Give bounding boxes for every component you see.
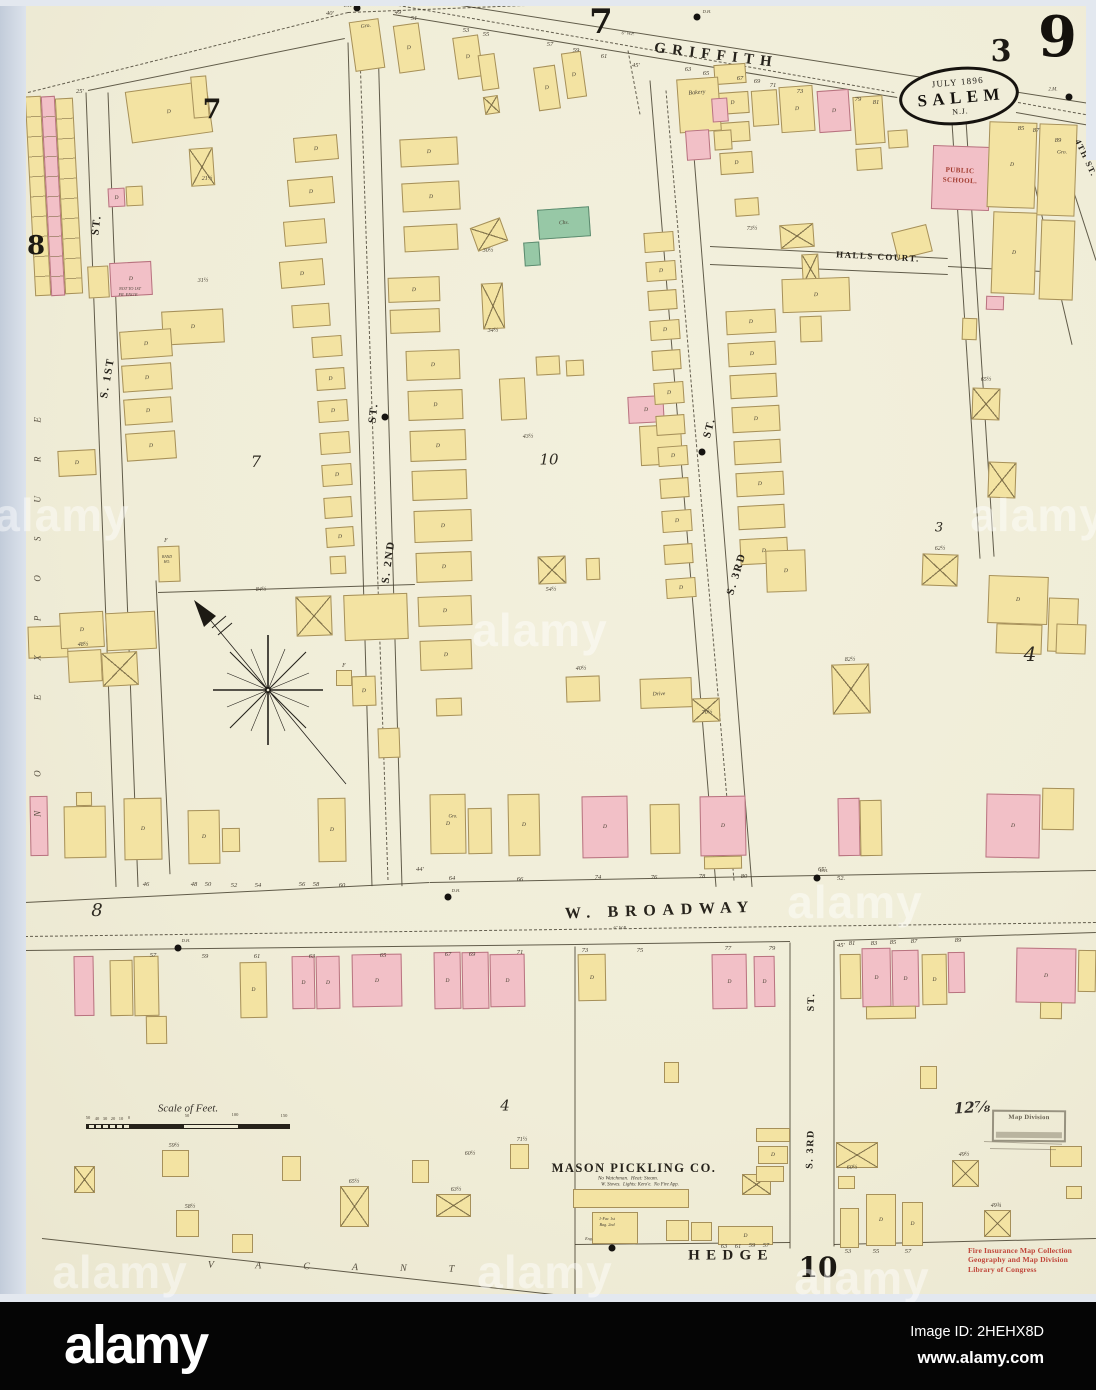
building-label: D <box>409 390 463 420</box>
stamp-sketch-line <box>990 1148 1056 1150</box>
building-footprint <box>921 553 958 586</box>
building-footprint <box>481 282 505 329</box>
scan-margin-right <box>1086 0 1096 160</box>
building-label: D <box>1017 948 1076 1002</box>
map-line <box>834 941 835 1247</box>
building-footprint <box>962 318 978 341</box>
map-note: 6" W.P. <box>613 926 626 931</box>
building-footprint <box>64 806 107 859</box>
house-number: 69 <box>469 952 476 959</box>
building-footprint: D <box>645 260 676 282</box>
building-footprint: D <box>987 121 1038 209</box>
house-number: D.H. <box>703 10 712 15</box>
house-number: 77 <box>725 946 732 953</box>
building-footprint: D <box>712 954 748 1010</box>
building-label: D <box>317 957 340 1008</box>
building-footprint: D <box>754 956 776 1007</box>
building-footprint: D <box>725 309 776 336</box>
building-label: D <box>124 397 172 424</box>
map-line <box>628 50 641 114</box>
block-number: 4 <box>500 1099 510 1114</box>
loc-credit-line: Library of Congress <box>968 1265 1094 1274</box>
building-label: D <box>326 527 353 547</box>
house-number: 71 <box>770 83 777 90</box>
building-footprint <box>499 377 527 420</box>
building-label: D <box>394 24 424 73</box>
building-footprint <box>282 1156 301 1181</box>
building-footprint: D <box>902 1202 923 1246</box>
building-footprint <box>729 373 777 399</box>
building-footprint <box>510 1144 529 1169</box>
building-footprint: D <box>279 258 325 289</box>
building-footprint <box>639 677 692 709</box>
building-label: D <box>759 1147 787 1163</box>
building-footprint <box>222 828 240 852</box>
building-footprint <box>283 218 327 247</box>
building-footprint: D <box>419 639 472 671</box>
house-number: 20 <box>111 1117 116 1122</box>
map-note: NOT TO 1ST <box>119 287 141 291</box>
building-label: D <box>414 510 471 542</box>
building-footprint <box>655 414 685 436</box>
alamy-watermark: alamy <box>787 875 922 929</box>
house-number: 59 <box>573 48 580 55</box>
building-label: D <box>903 1203 922 1245</box>
building-footprint <box>483 95 500 115</box>
building-footprint: D <box>561 51 587 99</box>
house-number: 10 <box>119 1117 124 1122</box>
map-note: Bag. 2nd <box>599 1223 614 1227</box>
building-footprint <box>737 504 785 530</box>
building-footprint <box>1039 219 1076 300</box>
building-label: D <box>654 382 683 404</box>
building-label: D <box>294 135 338 162</box>
utility-marker-dot <box>699 449 706 456</box>
house-number: 52 <box>231 883 238 890</box>
map-note: HO. <box>164 561 170 565</box>
building-footprint: D <box>817 89 852 133</box>
scan-margin-left <box>0 0 26 1302</box>
house-number: 58 <box>313 882 320 889</box>
house-number: 55 <box>873 1249 880 1256</box>
house-number: 65' <box>818 867 826 874</box>
building-footprint: D <box>401 181 460 213</box>
building-footprint: D <box>758 1146 788 1164</box>
building-footprint: D <box>731 405 780 433</box>
building-footprint: D <box>123 396 173 425</box>
utility-marker-dot <box>382 414 389 421</box>
building-footprint: D <box>119 328 173 360</box>
building-label: D <box>109 189 125 207</box>
building-label: D <box>700 797 745 856</box>
building-label: D <box>421 640 472 670</box>
building-label: D <box>435 953 461 1008</box>
house-number: 54½ <box>546 587 557 593</box>
house-number: 150 <box>281 1114 288 1119</box>
street-label: HALLS COURT. <box>836 250 920 263</box>
building-footprint: D <box>781 277 850 313</box>
house-number: 60½ <box>847 1165 858 1171</box>
building-label: D <box>650 320 679 340</box>
building-label: D <box>582 797 627 858</box>
house-number: 73 <box>582 948 589 955</box>
building-footprint: D <box>649 319 680 341</box>
building-footprint: D <box>533 65 561 112</box>
building-footprint <box>800 316 823 343</box>
building-label: D <box>280 259 324 288</box>
building-footprint <box>659 477 689 499</box>
building-footprint: D <box>292 956 316 1009</box>
house-number: 40 <box>95 1117 100 1122</box>
house-number: 82½ <box>845 657 856 663</box>
house-number: 51 <box>411 16 418 23</box>
utility-marker-dot <box>445 894 452 901</box>
building-label: D <box>579 955 606 1000</box>
building-footprint <box>666 1220 689 1241</box>
map-note: MASON PICKLING CO. <box>552 1162 717 1175</box>
house-number: 71 <box>517 950 524 957</box>
map-line <box>710 264 948 275</box>
house-number: 66 <box>517 877 524 884</box>
building-footprint <box>713 129 732 150</box>
sanborn-map-sheet: DDDDDDDDDDDDDDDDDDDDDDDDDDDDDDDChs.DDDDD… <box>0 0 1096 1302</box>
building-footprint <box>101 651 139 687</box>
building-label: D <box>400 138 457 167</box>
loc-credit-line: Geography and Map Division <box>968 1255 1094 1264</box>
house-number: 45' <box>632 63 640 70</box>
map-note: Gro. <box>448 815 457 820</box>
alamy-watermark: alamy <box>52 1245 187 1299</box>
house-number: 59 <box>749 1243 756 1250</box>
building-footprint: D <box>417 595 472 627</box>
block-number: 3 <box>991 37 1012 67</box>
block-number: 3 <box>935 522 943 535</box>
house-number: 76 <box>651 875 658 882</box>
house-number: F <box>164 538 168 544</box>
house-number: 2.M. <box>1048 88 1057 93</box>
building-footprint: D <box>985 794 1040 859</box>
building-footprint <box>146 1016 167 1044</box>
building-footprint <box>704 856 742 870</box>
building-footprint <box>523 241 541 266</box>
building-footprint <box>340 1186 369 1227</box>
street-label: W. BROADWAY <box>565 900 756 923</box>
building-footprint <box>538 556 567 585</box>
building-label: D <box>646 261 675 281</box>
building-label: D <box>988 576 1048 624</box>
house-number: 44' <box>416 867 424 874</box>
block-number: 7 <box>251 454 261 470</box>
street-label: ST. <box>90 214 103 236</box>
building-label: D <box>720 152 752 174</box>
house-number: 65 <box>703 71 710 78</box>
house-number: 59 <box>202 954 209 961</box>
house-number: 79 <box>769 946 776 953</box>
building-footprint <box>73 956 94 1016</box>
loc-credit: Fire Insurance Map Collection Geography … <box>968 1246 1094 1274</box>
map-line <box>88 38 345 91</box>
house-number: 71½ <box>517 1137 528 1143</box>
building-footprint <box>948 952 966 993</box>
building-label: D <box>58 450 95 476</box>
block-number: 7 <box>203 97 222 124</box>
building-label: D <box>755 957 775 1006</box>
building-footprint: D <box>987 575 1049 625</box>
building-label: D <box>818 90 851 132</box>
building-footprint <box>468 808 493 854</box>
block-number: 10 <box>539 453 558 468</box>
building-label: D <box>353 955 402 1007</box>
map-note: No Watchman. Heat: Steam. <box>598 1176 658 1181</box>
loc-credit-line: Fire Insurance Map Collection <box>968 1246 1094 1255</box>
building-label: D <box>863 949 891 1006</box>
house-number: 48½ <box>78 642 89 648</box>
alamy-url[interactable]: www.alamy.com <box>910 1349 1044 1368</box>
house-number: 65 <box>380 953 387 960</box>
building-footprint: D <box>405 349 460 381</box>
building-footprint: D <box>315 367 345 391</box>
house-number: 63 <box>309 954 316 961</box>
building-footprint: D <box>727 341 776 367</box>
building-footprint: D <box>653 381 684 405</box>
utility-marker-dot <box>1066 94 1073 101</box>
building-footprint <box>76 792 92 806</box>
house-number: 100 <box>232 1113 239 1118</box>
map-line <box>790 943 791 1249</box>
building-footprint: D <box>719 151 753 175</box>
building-footprint <box>971 388 1000 421</box>
house-number: 81 <box>873 100 880 107</box>
map-note: W. Stoves. Lights: Kero'e. No Fire App. <box>601 1184 679 1189</box>
building-footprint: D <box>1016 947 1077 1003</box>
building-footprint <box>311 335 342 358</box>
building-footprint: D <box>121 362 173 392</box>
building-footprint: D <box>429 794 466 855</box>
house-number: 89 <box>955 938 962 945</box>
house-number: 78 <box>699 874 706 881</box>
scale-bar <box>86 1124 290 1129</box>
house-number: 67 <box>737 76 744 83</box>
compass-rose-icon <box>160 572 376 812</box>
building-label: D <box>986 795 1039 858</box>
building-footprint <box>650 804 681 855</box>
house-number: 61 <box>254 954 261 961</box>
building-label: D <box>407 350 460 380</box>
building-label: D <box>124 799 161 860</box>
building-footprint <box>840 954 862 999</box>
building-label: D <box>120 329 172 358</box>
house-number: 25' <box>76 89 84 96</box>
building-label: D <box>419 596 472 626</box>
building-label: D <box>726 310 775 334</box>
house-number: 61 <box>601 54 608 61</box>
building-footprint <box>176 1210 199 1237</box>
building-footprint: D <box>188 810 221 865</box>
alamy-watermark: alamy <box>472 603 607 657</box>
building-footprint <box>984 1210 1011 1237</box>
scale-segment <box>238 1125 289 1128</box>
building-label: D <box>732 406 779 432</box>
building-label: D <box>562 52 586 98</box>
house-number: 64 <box>449 876 456 883</box>
house-number: 49¾ <box>991 1203 1002 1209</box>
building-footprint: D <box>735 471 784 497</box>
street-label: S. 3RD <box>725 552 748 597</box>
building-footprint: D <box>861 948 891 1007</box>
utility-marker-dot <box>814 875 821 882</box>
map-note: FR. ENG'E <box>118 293 137 297</box>
block-number: 10 <box>799 1254 838 1282</box>
building-footprint <box>647 289 677 311</box>
building-footprint <box>377 728 400 759</box>
building-footprint <box>411 469 467 501</box>
map-line <box>575 941 790 945</box>
building-footprint <box>711 97 729 122</box>
building-footprint <box>436 1194 471 1217</box>
block-number: 8 <box>91 902 102 920</box>
building-footprint <box>436 698 463 717</box>
building-label: D <box>389 277 440 302</box>
house-number: 70½ <box>702 710 713 716</box>
building-label: D <box>288 177 334 206</box>
building-label: D <box>241 963 267 1017</box>
building-footprint <box>586 558 601 580</box>
building-footprint <box>691 1222 712 1241</box>
building-footprint <box>987 462 1016 499</box>
building-footprint: D <box>287 176 335 207</box>
map-line <box>25 944 575 951</box>
house-number: 50 <box>86 1116 91 1121</box>
building-footprint <box>67 649 103 683</box>
house-number: 60½ <box>465 1151 476 1157</box>
building-label: D <box>923 955 947 1004</box>
building-footprint: D <box>409 429 466 462</box>
building-footprint <box>663 543 693 565</box>
building-label: D <box>534 66 560 110</box>
building-footprint: Chs. <box>537 206 591 240</box>
block-number: 4 <box>1024 644 1037 664</box>
alamy-stock-page: DDDDDDDDDDDDDDDDDDDDDDDDDDDDDDDChs.DDDDD… <box>0 0 1096 1390</box>
house-number: 30½ <box>483 248 494 254</box>
house-number: 0 <box>128 1116 130 1121</box>
map-line <box>430 870 1096 883</box>
block-number: 7 <box>589 5 613 39</box>
house-number: D.H. <box>182 939 191 944</box>
footer-info: Image ID: 2HEHX8D www.alamy.com <box>910 1324 1044 1368</box>
stamp-smudge <box>996 1132 1062 1139</box>
building-footprint <box>1055 623 1086 654</box>
building-footprint: D <box>321 463 352 487</box>
house-number: 79 <box>855 97 862 104</box>
map-line <box>108 92 139 886</box>
map-line <box>378 42 403 886</box>
building-footprint <box>920 1066 937 1089</box>
building-footprint: D <box>699 796 746 857</box>
building-footprint <box>412 1160 429 1183</box>
building-footprint: D <box>661 509 692 533</box>
building-footprint: D <box>317 399 348 423</box>
house-number: 85 <box>1018 126 1025 133</box>
building-footprint <box>323 496 352 519</box>
house-number: 63 <box>721 1244 728 1251</box>
building-footprint <box>1078 950 1096 992</box>
building-label: D <box>126 431 176 460</box>
alamy-logo[interactable]: alamy <box>64 1314 207 1376</box>
house-number: 67 <box>445 952 452 959</box>
house-number: 57 <box>763 1243 770 1250</box>
building-footprint: D <box>108 188 126 208</box>
building-footprint: D <box>352 954 403 1008</box>
building-footprint: D <box>991 211 1038 294</box>
building-footprint <box>133 956 159 1016</box>
building-footprint: D <box>415 551 472 583</box>
building-footprint <box>125 186 143 207</box>
map-line <box>25 882 430 903</box>
stamp-label: Map Division <box>994 1114 1064 1122</box>
house-number: 58½ <box>185 1204 196 1210</box>
house-number: 75 <box>637 948 644 955</box>
building-footprint <box>1040 1002 1062 1019</box>
building-footprint: D <box>325 526 354 548</box>
building-footprint <box>291 303 331 329</box>
map-line <box>25 922 1096 937</box>
building-footprint <box>756 1128 790 1142</box>
building-footprint <box>110 960 134 1016</box>
house-number: 73 <box>797 89 804 96</box>
building-footprint <box>685 129 711 161</box>
building-label: D <box>508 795 539 856</box>
building-footprint <box>573 1189 689 1208</box>
house-number: 48 <box>191 882 198 889</box>
house-number: 53 <box>845 1249 852 1256</box>
building-footprint: D <box>57 449 96 477</box>
building-label: D <box>713 955 747 1009</box>
building-label: D <box>666 578 695 598</box>
house-number: 49½ <box>959 1152 970 1158</box>
map-state: N.J. <box>952 106 969 116</box>
building-footprint: D <box>765 549 806 592</box>
building-footprint <box>162 1150 189 1177</box>
map-note: 12⅞ <box>953 1100 990 1117</box>
utility-marker-dot <box>175 945 182 952</box>
building-footprint <box>986 296 1004 311</box>
image-id: Image ID: 2HEHX8D <box>910 1324 1044 1340</box>
building-footprint: D <box>125 430 177 461</box>
house-number: 21½ <box>202 176 213 182</box>
building-label: D <box>122 363 172 391</box>
map-division-stamp: Map Division <box>992 1110 1066 1143</box>
block-number: 8 <box>27 233 45 259</box>
house-number: 85 <box>890 940 897 947</box>
building-label: D <box>322 464 351 486</box>
house-number: 74 <box>595 875 602 882</box>
street-label: S. 1ST <box>99 357 117 399</box>
alamy-watermark: alamy <box>477 1245 612 1299</box>
building-footprint: D <box>581 796 628 859</box>
house-number: 49 <box>395 10 402 17</box>
house-number: 52. <box>837 876 845 883</box>
building-label: D <box>766 550 805 591</box>
house-number: 65½ <box>981 377 992 383</box>
house-number: 60 <box>339 883 346 890</box>
building-label: D <box>736 472 783 496</box>
building-footprint <box>733 439 781 465</box>
building-label: D <box>988 122 1037 208</box>
house-number: 53 <box>463 28 470 35</box>
house-number: 43½ <box>523 434 534 440</box>
building-label: D <box>867 1195 895 1245</box>
scale-segment <box>184 1125 238 1128</box>
